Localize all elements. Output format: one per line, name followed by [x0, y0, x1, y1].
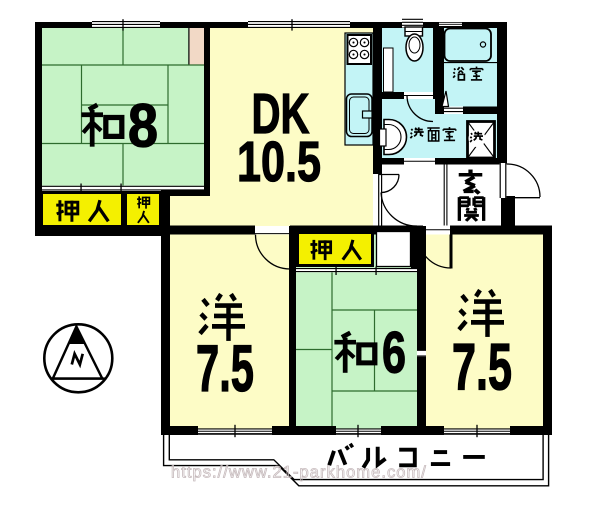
svg-text:8: 8: [128, 92, 158, 160]
svg-text:7.5: 7.5: [452, 331, 512, 404]
svg-text:https://www.21-parkhome.com/: https://www.21-parkhome.com/: [171, 464, 427, 482]
svg-text:10.5: 10.5: [237, 130, 321, 193]
svg-text:7.5: 7.5: [196, 332, 254, 405]
svg-text:6: 6: [382, 321, 406, 386]
